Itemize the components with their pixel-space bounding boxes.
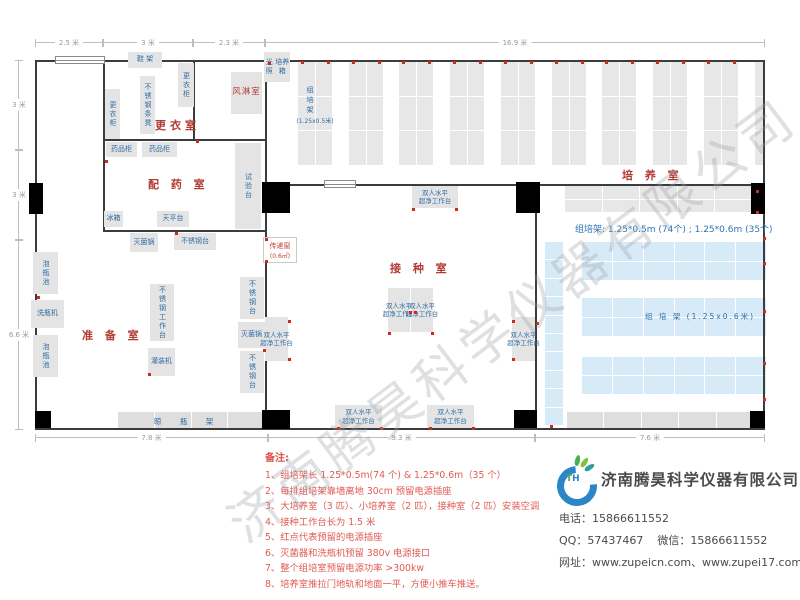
clean-bench-label: 超净工作台 bbox=[260, 339, 293, 347]
dimension-label: 3 米 bbox=[137, 38, 159, 48]
dimension-label: 9.3 米 bbox=[387, 433, 415, 443]
dimension-label: 3 米 bbox=[10, 189, 28, 201]
dimension-vertical: 6.6 米 bbox=[18, 240, 19, 430]
outlet-dot bbox=[288, 320, 291, 323]
outlet-dot bbox=[512, 358, 515, 361]
outlet-dot bbox=[512, 320, 515, 323]
clean-bench-label: 超净工作台 bbox=[419, 197, 452, 205]
culture-rack-sublabel: (1.25x0.5米) bbox=[293, 116, 337, 124]
outlet-dot bbox=[402, 61, 405, 64]
dimension-tick bbox=[15, 240, 23, 241]
dimension-horizontal: 2.3 米 bbox=[193, 42, 265, 43]
dimension-tick bbox=[265, 39, 266, 47]
outlet-dot bbox=[504, 61, 507, 64]
dimension-vertical: 3 米 bbox=[18, 150, 19, 240]
outlet-dot bbox=[409, 311, 412, 314]
note-item: 5、红点代表预留的电源插座 bbox=[265, 530, 550, 546]
clean-bench-label: 超净工作台 bbox=[434, 417, 467, 425]
equipment-box: 灌装机 bbox=[148, 348, 175, 376]
window-symbol bbox=[55, 56, 105, 64]
outlet-dot bbox=[453, 61, 456, 64]
outlet-dot bbox=[414, 311, 417, 314]
clean-bench-label: 超净工作台 bbox=[507, 339, 540, 347]
note-item: 2、每排组培架靠墙离地 30cm 预留电源插座 bbox=[265, 484, 550, 500]
outlet-dot bbox=[378, 61, 381, 64]
window-symbol bbox=[324, 180, 356, 188]
dimension-label: 7.6 米 bbox=[636, 433, 664, 443]
clean-bench: 双人水平超净工作台 bbox=[265, 317, 288, 361]
room-label-changing: 更衣室 bbox=[155, 117, 245, 131]
company-name: 济南腾昊科学仪器有限公司 bbox=[601, 468, 799, 490]
contact-web: 网址：www.zupeicn.com、www.zupei17.com bbox=[559, 552, 795, 574]
structural-column bbox=[29, 183, 43, 214]
outlet-dot bbox=[763, 398, 766, 401]
dimension-label: 2.3 米 bbox=[215, 38, 243, 48]
transfer-window-label: 传递窗 bbox=[270, 241, 291, 251]
clean-bench: 双人水平超净工作台 bbox=[512, 317, 535, 361]
equipment-box: 洗瓶机 bbox=[31, 300, 64, 328]
notes-block: 备注: 1、组培架长 1.25*0.5m(74 个) & 1.25*0.6m（3… bbox=[265, 449, 550, 592]
clean-bench-label: 双人水平 bbox=[346, 408, 372, 416]
culture-rack-note: 组培架: 1.25*0.5m (74个) ; 1.25*0.6m (35个) bbox=[575, 222, 765, 234]
room-label-inoculation: 接 种 室 bbox=[390, 260, 480, 274]
outlet-dot bbox=[756, 211, 759, 214]
dimension-tick bbox=[15, 60, 23, 61]
clean-bench-label: 双人水平 bbox=[422, 189, 448, 197]
dimension-tick bbox=[268, 434, 269, 442]
inner-wall bbox=[103, 230, 267, 232]
outlet-dot bbox=[105, 160, 108, 163]
outlet-dot bbox=[631, 61, 634, 64]
company-logo-icon: TH bbox=[555, 456, 597, 502]
structural-column bbox=[35, 411, 51, 428]
dimension-vertical: 3 米 bbox=[18, 60, 19, 150]
equipment-box: 天平台 bbox=[157, 211, 189, 227]
notes-list: 1、组培架长 1.25*0.5m(74 个) & 1.25*0.6m（35 个）… bbox=[265, 468, 550, 592]
dimension-tick bbox=[764, 39, 765, 47]
clean-bench-label: 双人水平 bbox=[438, 408, 464, 416]
structural-column bbox=[262, 410, 290, 429]
room-label-culture: 培 养 室 bbox=[622, 167, 712, 181]
contact-qq-wechat: QQ：57437467微信：15866611552 bbox=[559, 530, 795, 552]
room-label-prep: 准 备 室 bbox=[82, 327, 172, 341]
note-item: 7、整个组培室预留电源功率 >300kw bbox=[265, 561, 550, 577]
equipment-box: 不锈钢台 bbox=[174, 233, 216, 250]
equipment-box: 试验台 bbox=[235, 143, 261, 229]
equipment-label: 培养箱 bbox=[274, 58, 290, 76]
outlet-dot bbox=[431, 332, 434, 335]
culture-rack-label: 组培架 bbox=[303, 86, 315, 120]
note-item: 6、灭菌器和洗瓶机预留 380v 电源接口 bbox=[265, 546, 550, 562]
equipment-box: 不锈钢台 bbox=[240, 277, 264, 319]
outlet-dot bbox=[581, 61, 584, 64]
equipment-box: 冰箱 bbox=[104, 211, 123, 227]
dimension-label: 7.8 米 bbox=[137, 433, 165, 443]
equipment-box: 风淋室 bbox=[231, 72, 262, 114]
equipment-box: 泡瓶池 bbox=[33, 252, 58, 294]
outlet-dot bbox=[479, 61, 482, 64]
contact-phone: 电话：15866611552 bbox=[559, 508, 795, 530]
outlet-dot bbox=[268, 62, 271, 65]
dimension-horizontal: 9.3 米 bbox=[268, 437, 535, 438]
outlet-dot bbox=[37, 296, 40, 299]
company-header: TH 济南腾昊科学仪器有限公司 bbox=[555, 456, 795, 502]
structural-column bbox=[514, 410, 537, 428]
outlet-dot bbox=[175, 232, 178, 235]
dimension-label: 6.6 米 bbox=[7, 329, 31, 341]
logo-th-text: TH bbox=[566, 474, 580, 484]
dimension-tick bbox=[35, 434, 36, 442]
outlet-dot bbox=[265, 238, 268, 241]
dimension-tick bbox=[15, 429, 23, 430]
outlet-dot bbox=[763, 262, 766, 265]
dimension-tick bbox=[35, 39, 36, 47]
dimension-tick bbox=[193, 39, 194, 47]
outlet-dot bbox=[472, 427, 475, 430]
dimension-tick bbox=[103, 39, 104, 47]
dimension-label: 2.5 米 bbox=[55, 38, 83, 48]
outlet-dot bbox=[428, 61, 431, 64]
outlet-dot bbox=[707, 61, 710, 64]
company-contacts: 电话：15866611552 QQ：57437467微信：15866611552… bbox=[559, 508, 795, 574]
note-item: 4、接种工作台长为 1.5 米 bbox=[265, 515, 550, 531]
equipment-box: 不锈钢台 bbox=[240, 351, 264, 393]
drying-rack-label: 晾 瓶 架 bbox=[154, 416, 234, 426]
dimension-horizontal: 2.5 米 bbox=[35, 42, 103, 43]
inner-wall bbox=[103, 139, 267, 141]
equipment-box: 不锈钢条凳 bbox=[140, 76, 155, 134]
page: { "watermark": "济南腾昊科学仪器有限公司", "floorpla… bbox=[0, 0, 800, 600]
outlet-dot bbox=[656, 61, 659, 64]
outlet-dot bbox=[148, 373, 151, 376]
equipment-box: 更衣柜 bbox=[105, 89, 120, 139]
clean-bench: 双人水平超净工作台 bbox=[335, 405, 382, 428]
clean-bench-label: 双人水平 bbox=[511, 331, 537, 339]
equipment-box: 灭菌锅 bbox=[130, 233, 158, 252]
clean-bench: 双人水平超净工作台 bbox=[427, 405, 474, 428]
equipment-label: 光照 bbox=[264, 58, 274, 76]
outlet-dot bbox=[555, 61, 558, 64]
dimension-horizontal: 7.6 米 bbox=[535, 437, 765, 438]
dimension-tick bbox=[535, 434, 536, 442]
outlet-dot bbox=[733, 61, 736, 64]
equipment-box: 鞋 架 bbox=[128, 52, 162, 68]
outlet-dot bbox=[455, 208, 458, 211]
outlet-dot bbox=[352, 61, 355, 64]
outlet-dot bbox=[265, 260, 268, 263]
clean-bench: 双人水平超净工作台 bbox=[412, 186, 458, 208]
logo-swirl-icon bbox=[549, 458, 605, 514]
outlet-dot bbox=[763, 362, 766, 365]
dimension-horizontal: 3 米 bbox=[103, 42, 193, 43]
structural-column bbox=[262, 182, 290, 213]
outlet-dot bbox=[763, 310, 766, 313]
room-label-dispensing: 配 药 室 bbox=[148, 176, 238, 190]
transfer-window-size: (0.6㎡) bbox=[270, 251, 290, 260]
outlet-dot bbox=[756, 190, 759, 193]
outlet-dot bbox=[288, 358, 291, 361]
notes-title: 备注: bbox=[265, 449, 550, 464]
equipment-box: 光照培养箱 bbox=[264, 52, 290, 82]
dimension-label: 3 米 bbox=[10, 99, 28, 111]
structural-column bbox=[750, 411, 765, 428]
outlet-dot bbox=[429, 427, 432, 430]
clean-bench-label: 双人水平 bbox=[264, 331, 290, 339]
note-item: 3、大培养室（3 匹）、小培养室（2 匹），接种室（2 匹）安装空调 bbox=[265, 499, 550, 515]
clean-bench: 双人水平超净工作台 bbox=[411, 288, 433, 332]
inner-wall bbox=[103, 60, 105, 232]
transfer-window: 传递窗(0.6㎡) bbox=[263, 237, 297, 263]
structural-column bbox=[751, 183, 765, 214]
structural-column bbox=[516, 182, 540, 213]
blue-rack-label: 组 培 架 (1.25x0.6米) bbox=[645, 311, 765, 321]
outlet-dot bbox=[380, 427, 383, 430]
dimension-tick bbox=[764, 434, 765, 442]
note-item: 1、组培架长 1.25*0.5m(74 个) & 1.25*0.6m（35 个） bbox=[265, 468, 550, 484]
clean-bench-label: 超净工作台 bbox=[342, 417, 375, 425]
clean-bench-label: 双人水平 bbox=[409, 302, 435, 310]
equipment-box: 药品柜 bbox=[106, 142, 137, 157]
outlet-dot bbox=[301, 61, 304, 64]
outlet-dot bbox=[682, 61, 685, 64]
equipment-box: 药品柜 bbox=[142, 142, 177, 157]
outlet-dot bbox=[536, 322, 539, 325]
outlet-dot bbox=[530, 61, 533, 64]
equipment-box: 更衣柜 bbox=[178, 63, 194, 107]
outlet-dot bbox=[337, 427, 340, 430]
note-item: 8、培养室推拉门地轨和地面一平，方便小推车推送。 bbox=[265, 577, 550, 593]
outlet-dot bbox=[412, 208, 415, 211]
company-block: TH 济南腾昊科学仪器有限公司 电话：15866611552 QQ：574374… bbox=[555, 456, 795, 574]
outlet-dot bbox=[388, 332, 391, 335]
outlet-dot bbox=[196, 140, 199, 143]
inner-wall bbox=[535, 184, 537, 430]
dimension-tick bbox=[15, 150, 23, 151]
outlet-dot bbox=[263, 349, 266, 352]
dimension-label: 16.9 米 bbox=[499, 38, 532, 48]
dimension-horizontal: 7.8 米 bbox=[35, 437, 268, 438]
equipment-box: 泡瓶池 bbox=[33, 335, 58, 377]
dimension-horizontal: 16.9 米 bbox=[265, 42, 765, 43]
outlet-dot bbox=[605, 61, 608, 64]
outlet-dot bbox=[763, 237, 766, 240]
outlet-dot bbox=[327, 61, 330, 64]
outlet-dot bbox=[550, 425, 553, 428]
